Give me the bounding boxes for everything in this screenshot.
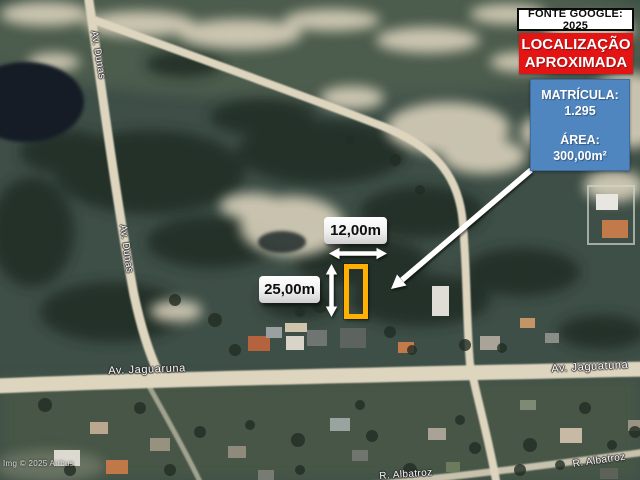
registry-label: MATRÍCULA: bbox=[541, 87, 619, 103]
registry-value: 1.295 bbox=[564, 103, 595, 119]
source-label: FONTE GOOGLE: 2025 bbox=[517, 8, 634, 31]
screenshot-stage: Av. Dunas Av. Dunas Av. Jaguaruna Av. Ja… bbox=[0, 0, 640, 480]
map-attribution: Img © 2025 Airbus bbox=[3, 459, 74, 468]
location-line-1: LOCALIZAÇÃO bbox=[521, 36, 630, 54]
property-info-card: MATRÍCULA: 1.295 ÁREA: 300,00m² bbox=[530, 79, 630, 171]
area-label: ÁREA: bbox=[560, 132, 600, 148]
approx-location-badge: LOCALIZAÇÃO APROXIMADA bbox=[519, 33, 633, 74]
height-dimension-label: 25,00m bbox=[259, 276, 320, 303]
width-dimension-label: 12,00m bbox=[324, 217, 387, 244]
area-value: 300,00m² bbox=[553, 148, 607, 164]
lot-highlight-rectangle bbox=[344, 264, 368, 319]
location-line-2: APROXIMADA bbox=[525, 54, 628, 72]
